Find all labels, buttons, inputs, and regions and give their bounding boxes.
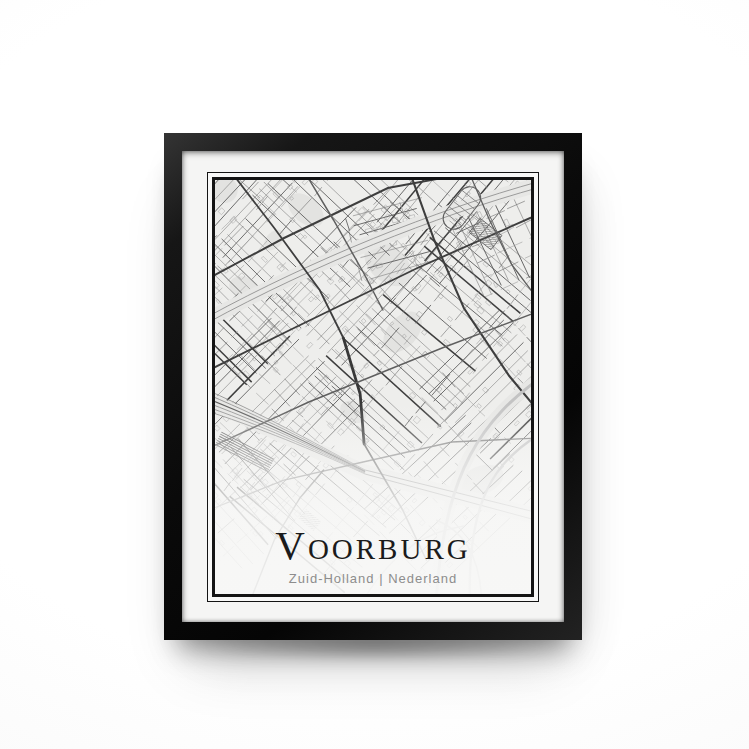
poster-title-block: Voorburg Zuid-Holland | Nederland bbox=[215, 525, 531, 586]
picture-frame: Voorburg Zuid-Holland | Nederland bbox=[164, 133, 582, 640]
poster-rule-border: Voorburg Zuid-Holland | Nederland bbox=[212, 177, 534, 597]
mat-board: Voorburg Zuid-Holland | Nederland bbox=[182, 151, 564, 622]
poster-title: Voorburg bbox=[215, 525, 531, 566]
map-poster: Voorburg Zuid-Holland | Nederland bbox=[207, 172, 539, 602]
poster-subtitle: Zuid-Holland | Nederland bbox=[215, 572, 531, 586]
product-photo-scene: Voorburg Zuid-Holland | Nederland bbox=[0, 0, 749, 749]
